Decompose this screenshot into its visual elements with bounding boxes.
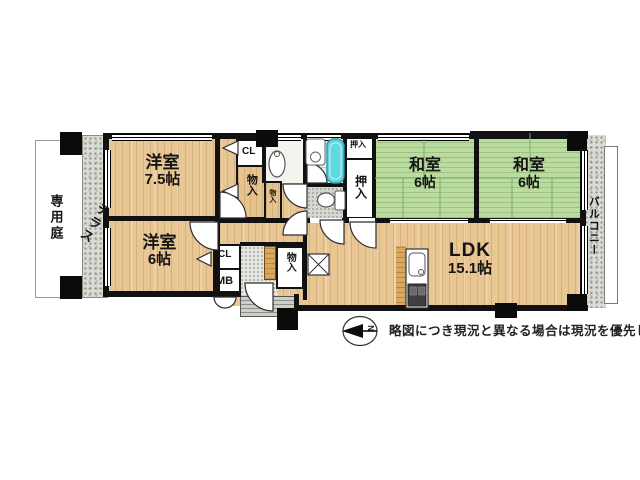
- window: [307, 134, 341, 141]
- window: [112, 134, 212, 141]
- window: [104, 150, 111, 208]
- pillar: [60, 132, 82, 155]
- wall: [474, 133, 479, 223]
- wall: [372, 133, 376, 223]
- compass-icon: N: [342, 317, 377, 346]
- wall: [240, 242, 307, 246]
- wall: [303, 218, 307, 300]
- pillar: [567, 294, 587, 311]
- toilet-floor: [303, 187, 347, 220]
- room-name: 洋室: [125, 153, 200, 172]
- room-label-west75: 洋室 7.5帖: [125, 153, 200, 189]
- room-name: 和室: [494, 157, 564, 175]
- window: [104, 228, 111, 286]
- pillar: [495, 303, 517, 318]
- kitchen-counter-back-panel: [396, 246, 406, 308]
- door-opening: [310, 218, 342, 223]
- wall: [303, 183, 347, 187]
- wall: [343, 133, 347, 223]
- compass-north-label: N: [367, 325, 376, 331]
- room-size: 7.5帖: [125, 172, 200, 189]
- label-oshiire-main: 押入: [353, 175, 366, 199]
- sliding-door-washitsu-left: [390, 219, 468, 223]
- room-label-washitsu-right: 和室 6帖: [494, 157, 564, 191]
- label-closet-west6: CL: [218, 249, 231, 260]
- room-name: LDK: [425, 240, 515, 261]
- balcony-outer-ledge: [604, 146, 618, 304]
- pillar: [60, 276, 82, 299]
- pillar: [256, 130, 278, 147]
- room-label-west6: 洋室 6帖: [122, 233, 197, 269]
- label-closet-west75: CL: [242, 146, 255, 157]
- label-private-garden: 専用庭: [48, 194, 63, 242]
- label-storage-hall-small: 物入: [268, 189, 276, 203]
- door-opening: [349, 218, 375, 223]
- room-label-ldk: LDK 15.1帖: [425, 240, 515, 278]
- room-size: 6帖: [494, 175, 564, 191]
- wall: [303, 135, 307, 187]
- room-size: 6帖: [122, 252, 197, 269]
- shoe-cabinet: [264, 246, 276, 280]
- label-meter-box: MB: [216, 275, 233, 287]
- room-size: 15.1帖: [425, 261, 515, 278]
- label-balcony: バルコニー: [587, 196, 599, 256]
- label-oshiire-top: 押入: [350, 141, 366, 150]
- wall: [108, 216, 215, 221]
- bathroom-floor: [303, 135, 347, 183]
- room-name: 洋室: [122, 233, 197, 252]
- room-label-washitsu-left: 和室 6帖: [390, 157, 460, 191]
- pillar: [567, 131, 587, 151]
- room-size: 6帖: [390, 175, 460, 191]
- label-storage-entry: 物入: [284, 252, 295, 272]
- room-name: 和室: [390, 157, 460, 175]
- window: [378, 134, 469, 141]
- disclaimer-note: 略図につき現況と異なる場合は現況を優先します: [389, 324, 640, 338]
- pillar: [277, 308, 298, 330]
- sliding-door-washitsu-right: [490, 219, 566, 223]
- wall: [294, 305, 588, 311]
- floor-plan: N 洋室 7.5帖 洋室 6帖 和室 6帖 和室 6帖 LDK 15.1帖 CL…: [0, 0, 640, 480]
- label-storage-west75: 物入: [245, 174, 257, 196]
